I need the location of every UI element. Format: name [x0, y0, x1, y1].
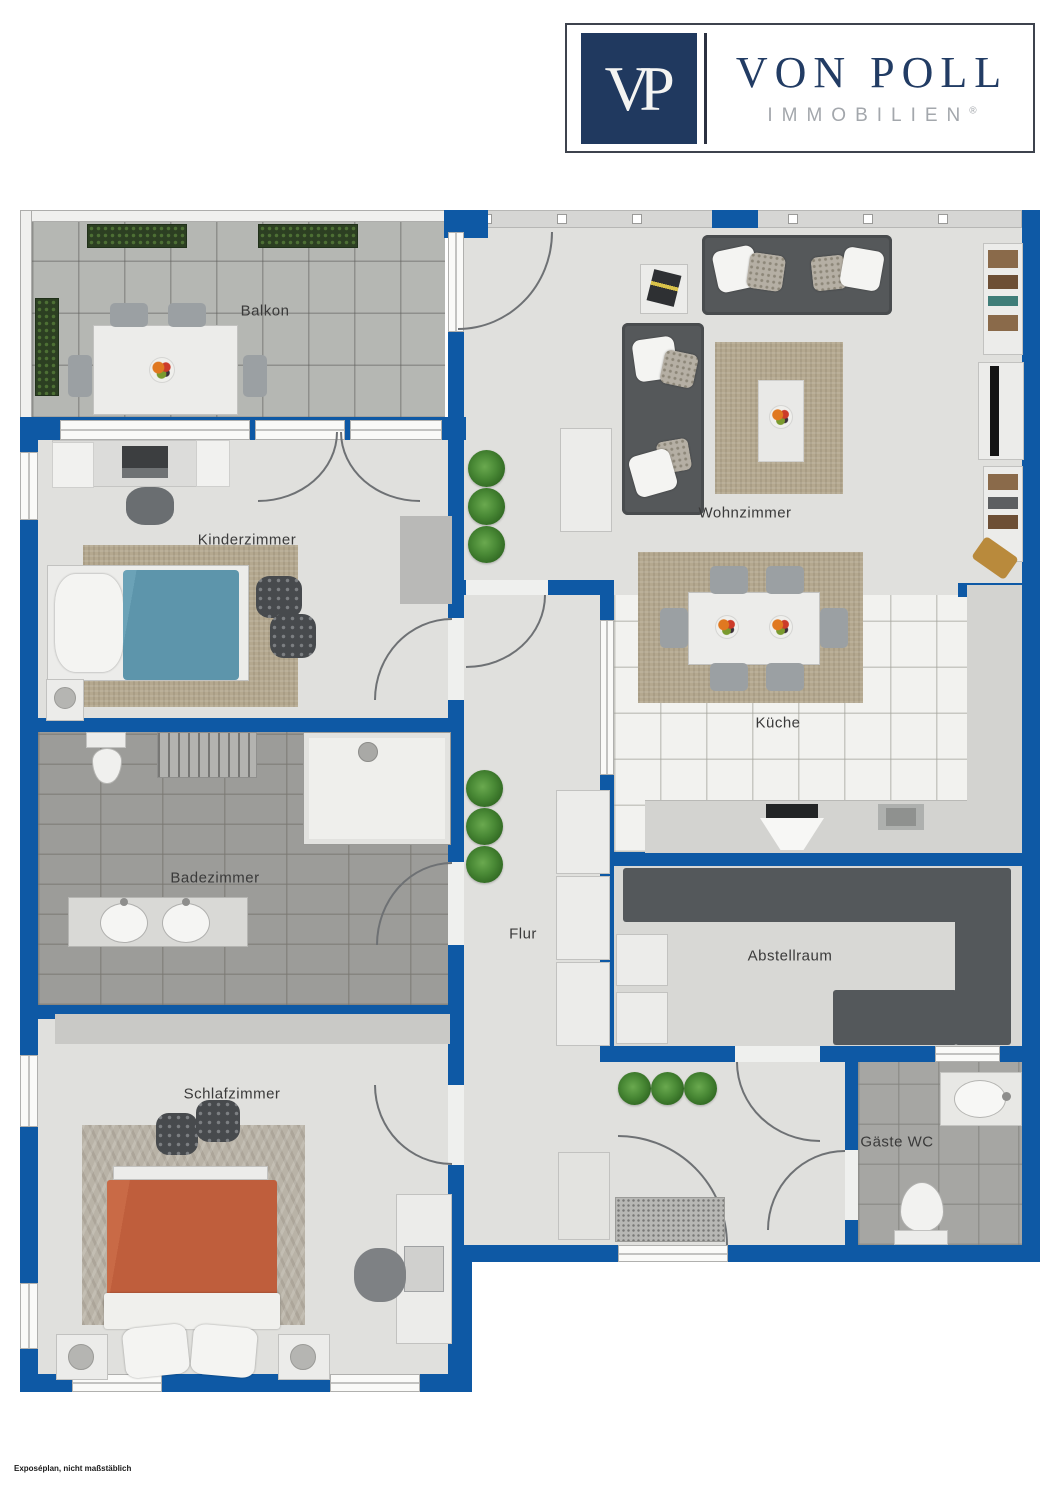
desk-cabinet: [196, 440, 230, 487]
hall-cabinet: [556, 876, 610, 960]
desk-cabinet: [52, 442, 94, 488]
brand-monogram-box: VP: [581, 33, 697, 144]
room-label-balkon: Balkon: [241, 304, 290, 319]
dining-chair: [710, 663, 748, 691]
wall-top-pier: [712, 210, 758, 228]
hall-cabinet: [556, 790, 610, 874]
bed-duvet: [107, 1180, 277, 1297]
storage-shelf: [833, 990, 957, 1045]
potted-plant: [618, 1072, 651, 1105]
entry-door-opening: [618, 1245, 728, 1262]
kitchen-counter: [645, 800, 1022, 853]
kitchen-counter: [967, 585, 1022, 802]
appliance: [616, 992, 668, 1044]
desk-chair: [354, 1248, 406, 1302]
bed-footboard: [113, 1166, 268, 1180]
room-label-wohnzimmer: Wohnzimmer: [698, 506, 791, 521]
window-bottom-2: [330, 1374, 420, 1392]
toilet-tank: [894, 1230, 948, 1245]
wall-kitchen-abstellraum: [614, 852, 1022, 866]
appliance: [616, 934, 668, 986]
dining-table: [688, 592, 820, 665]
potted-plant: [468, 488, 505, 525]
window-mullion: [938, 214, 948, 224]
planter-box: [258, 224, 358, 248]
window-mullion: [788, 214, 798, 224]
desk-chair: [126, 487, 174, 525]
kids-bed-duvet: [123, 570, 239, 680]
planter-box: [87, 224, 187, 248]
books: [988, 315, 1018, 331]
storage-shelf: [955, 868, 1011, 1045]
vanity-counter: [68, 897, 248, 947]
wall-right-outer: [1022, 210, 1040, 1262]
footer-note: Exposéplan, nicht maßstäblich: [14, 1464, 131, 1473]
window-balcony-kinder-1: [60, 420, 250, 440]
hall-cabinet: [556, 962, 610, 1046]
books: [988, 474, 1018, 490]
door-opening-flur-top: [466, 580, 548, 595]
window-mullion: [632, 214, 642, 224]
room-label-abstellraum: Abstellraum: [748, 949, 833, 964]
faucet: [120, 898, 128, 906]
books: [988, 515, 1018, 529]
books: [988, 250, 1018, 268]
planter-box: [35, 298, 59, 396]
pouf: [256, 576, 302, 618]
hall-cabinet: [560, 428, 612, 532]
wardrobe-mat: [400, 516, 452, 604]
bed-pillow: [122, 1323, 191, 1379]
brand-subtitle: IMMOBILIEN®: [717, 105, 1027, 127]
books: [988, 275, 1018, 289]
tv-screen: [990, 366, 999, 456]
wardrobe-strip: [55, 1014, 450, 1044]
wall-bottom-hall: [455, 1245, 1040, 1262]
brand-name: VON POLL: [717, 47, 1027, 98]
potted-plant: [684, 1072, 717, 1105]
balcony-railing-left: [20, 210, 32, 419]
kids-bed-pillow: [55, 574, 123, 672]
potted-plant: [466, 808, 503, 845]
cooktop: [766, 804, 818, 818]
pouf: [270, 614, 316, 658]
faucet: [1002, 1092, 1011, 1101]
doormat: [615, 1197, 725, 1242]
page: VP VON POLL IMMOBILIEN®: [0, 0, 1060, 1500]
books: [988, 296, 1018, 306]
books: [988, 497, 1018, 509]
faucet: [182, 898, 190, 906]
wall-schlafzimmer-right: [452, 1245, 472, 1374]
room-label-kueche: Küche: [755, 716, 800, 731]
brand-monogram: VP: [605, 52, 674, 126]
registered-mark: ®: [969, 106, 976, 117]
room-label-schlafzimmer: Schlafzimmer: [184, 1087, 281, 1102]
potted-plant: [466, 846, 503, 883]
balcony-chair: [168, 303, 206, 327]
storage-shelf: [623, 868, 1010, 922]
sofa-pillow-patterned: [746, 252, 787, 293]
window-left-schlafzimmer-1: [20, 1055, 38, 1127]
bed-sheet: [104, 1293, 280, 1329]
tv-board: [978, 362, 1024, 460]
toilet-tank: [86, 732, 126, 748]
brand-logo: VP VON POLL IMMOBILIEN®: [565, 23, 1035, 153]
logo-divider: [704, 33, 707, 144]
window-mullion: [557, 214, 567, 224]
balcony-chair: [243, 355, 267, 397]
pouf: [196, 1100, 240, 1142]
room-label-badezimmer: Badezimmer: [170, 871, 259, 886]
laptop: [404, 1246, 444, 1292]
room-label-gaeste-wc: Gäste WC: [860, 1135, 933, 1150]
fruit-bowl: [770, 406, 792, 428]
potted-plant: [651, 1072, 684, 1105]
room-label-kinderzimmer: Kinderzimmer: [198, 533, 297, 548]
window-flur-kueche: [600, 620, 614, 775]
window-mullion: [863, 214, 873, 224]
wc-sink-basin: [954, 1080, 1006, 1118]
potted-plant: [466, 770, 503, 807]
fruit-bowl: [716, 616, 738, 638]
potted-plant: [468, 526, 505, 563]
shower-head: [358, 742, 378, 762]
wall-kinder-bad: [38, 718, 452, 732]
sink-basin: [162, 903, 210, 943]
towel-radiator: [157, 732, 257, 778]
nightstand-lamp: [54, 687, 76, 709]
potted-plant: [468, 450, 505, 487]
sink-basin: [100, 903, 148, 943]
door-opening-wc: [845, 1150, 858, 1220]
room-label-flur: Flur: [509, 927, 537, 942]
sofa-pillow: [839, 246, 885, 292]
balcony-chair: [110, 303, 148, 327]
bed-pillow: [190, 1323, 258, 1378]
balcony-chair: [68, 355, 92, 397]
window-left-kinderzimmer: [20, 452, 38, 520]
wall-left-outer: [20, 417, 38, 1390]
nightstand-lamp: [68, 1344, 94, 1370]
kitchen-sink-basin: [886, 808, 916, 826]
dining-chair: [766, 566, 804, 594]
pouf: [156, 1113, 198, 1155]
balcony-railing-top: [20, 210, 445, 222]
dining-chair: [766, 663, 804, 691]
dining-chair: [660, 608, 688, 648]
window-wc: [935, 1046, 1000, 1062]
hall-cabinet: [558, 1152, 610, 1240]
fruit-bowl: [150, 358, 174, 382]
door-opening-abstellraum: [735, 1046, 820, 1062]
window-left-schlafzimmer-2: [20, 1283, 38, 1349]
laptop: [122, 446, 168, 478]
nightstand-lamp: [290, 1344, 316, 1370]
dining-chair: [820, 608, 848, 648]
dining-chair: [710, 566, 748, 594]
fruit-bowl: [770, 616, 792, 638]
sofa-pillow-patterned: [659, 349, 699, 389]
